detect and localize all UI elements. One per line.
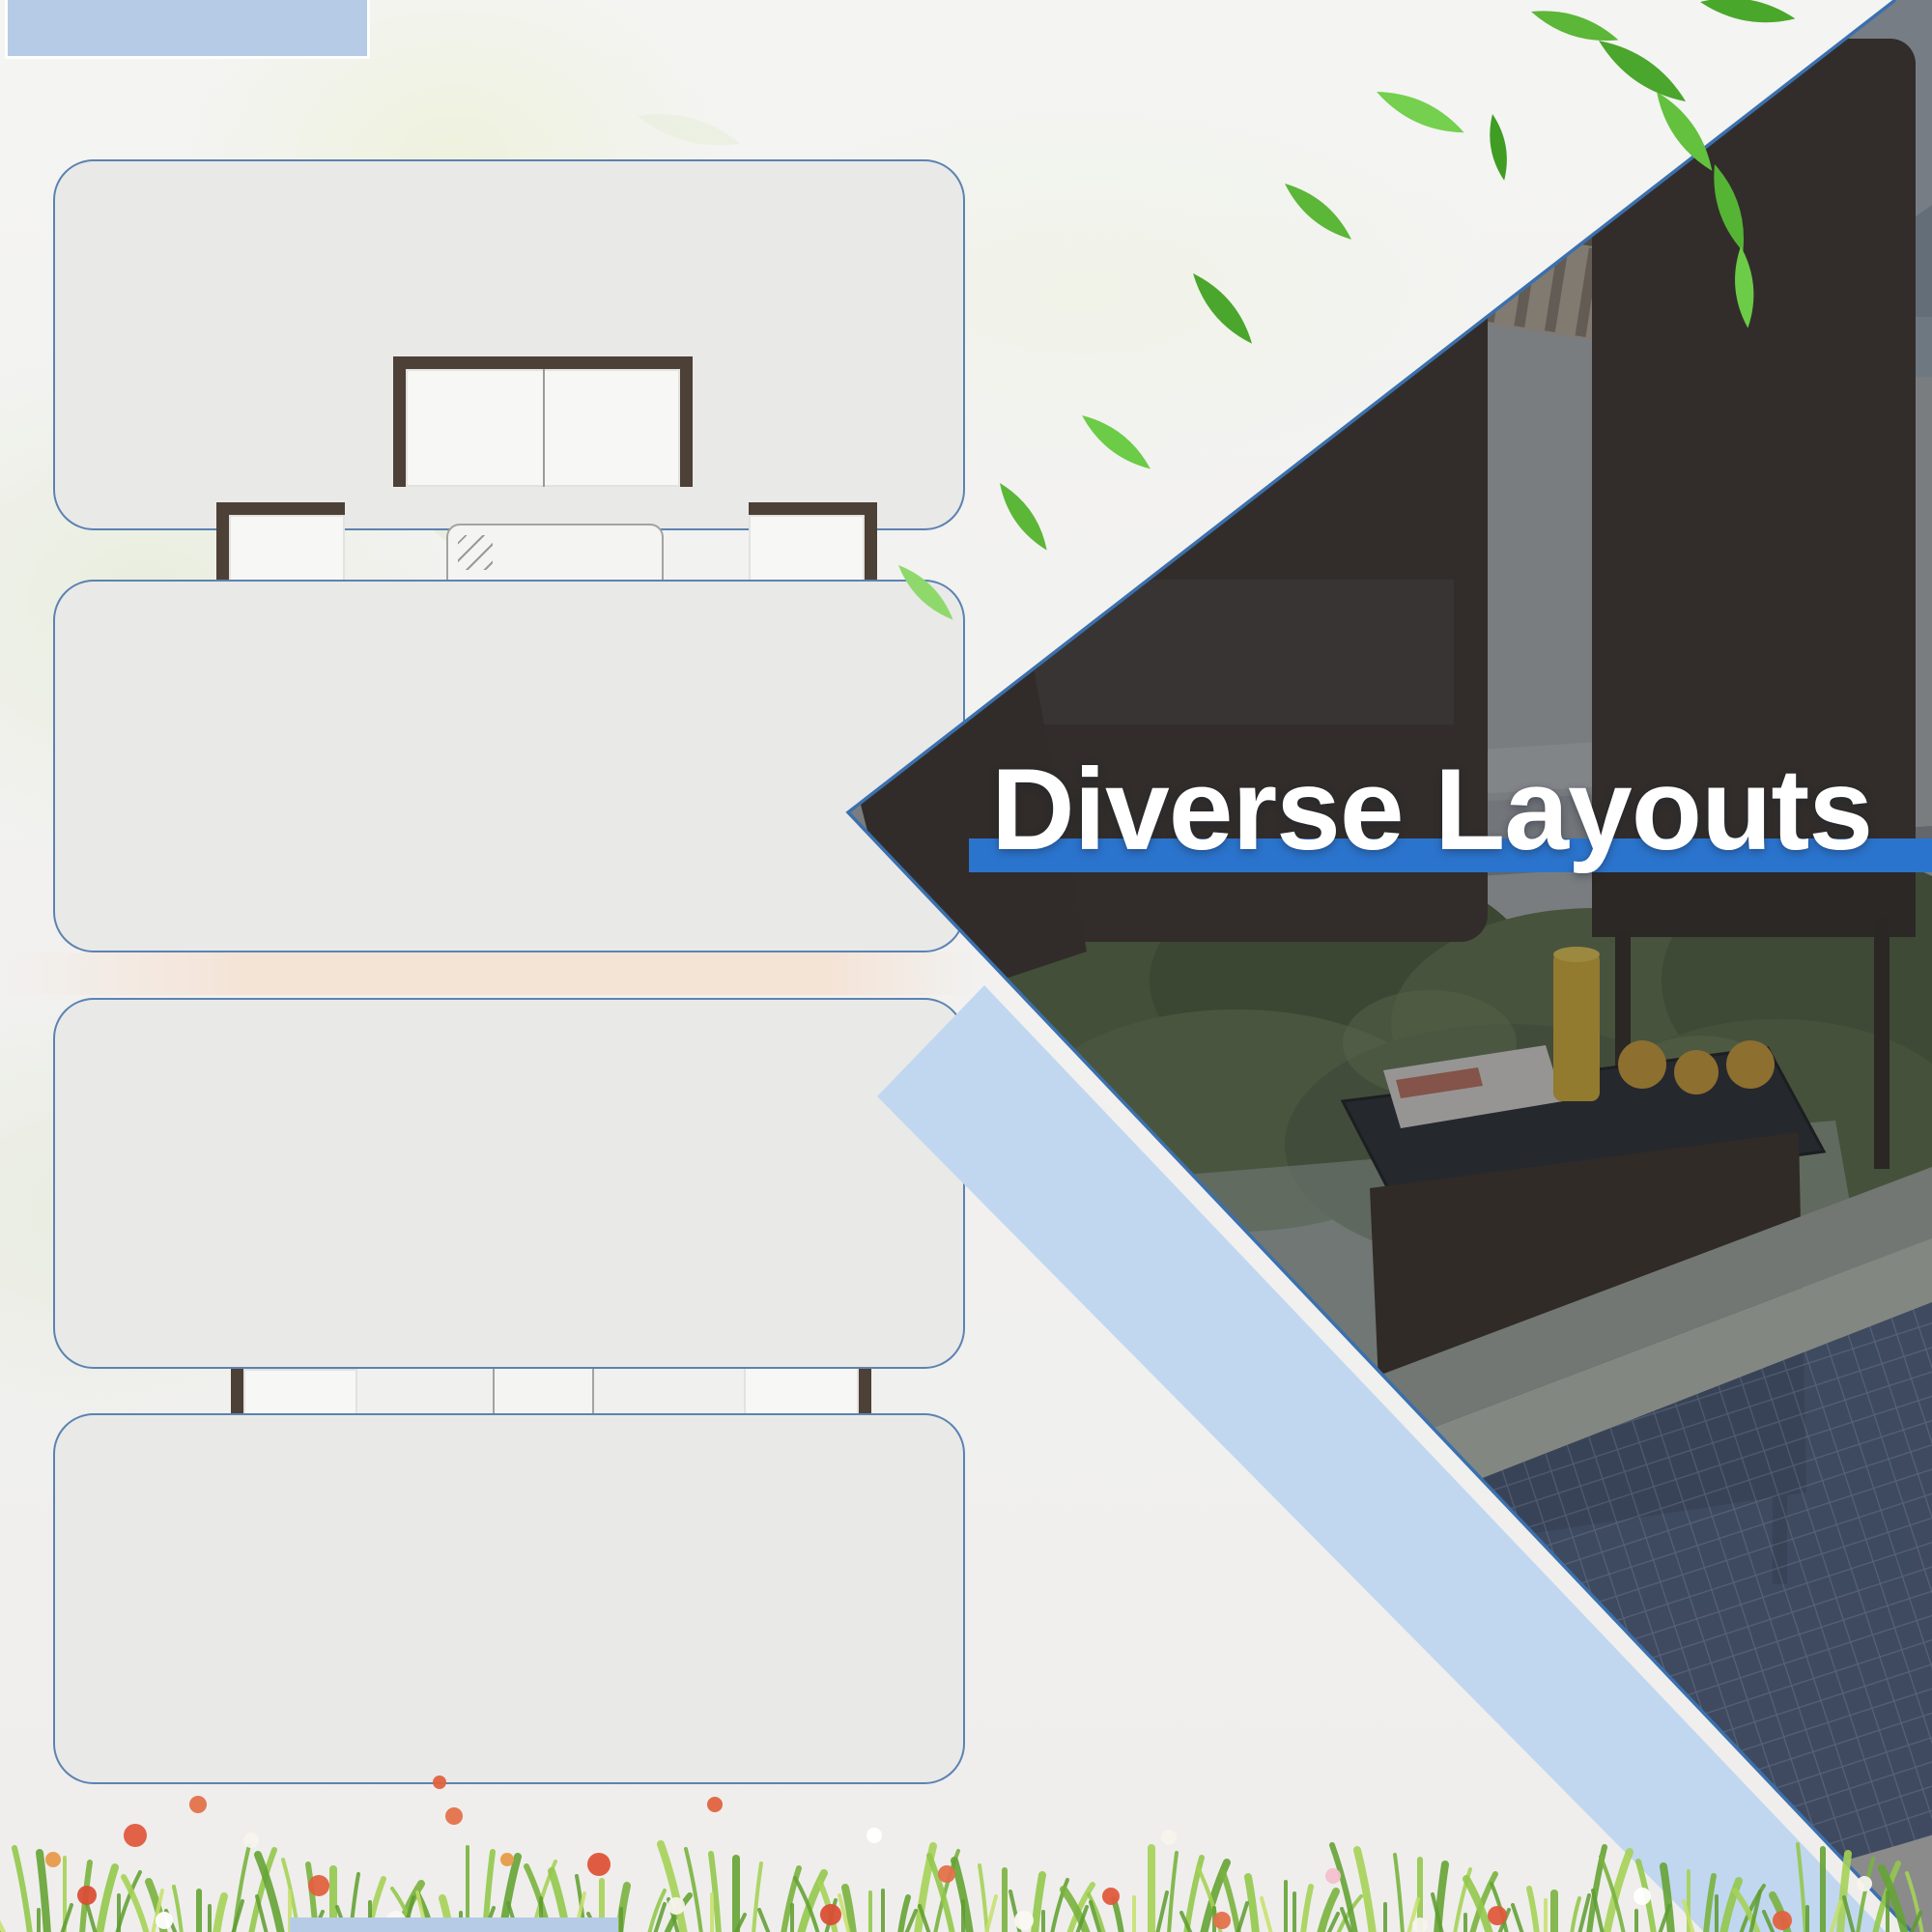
flower-dot — [1014, 1911, 1034, 1930]
grass-blade — [1395, 1855, 1403, 1932]
grass-blade — [900, 1897, 908, 1932]
patio-photo — [821, 0, 1932, 1932]
grass-blade — [1114, 1899, 1122, 1932]
grass-blade — [1157, 1892, 1167, 1932]
grass-blade — [1169, 1853, 1177, 1932]
flower-dot — [1773, 1911, 1792, 1930]
grass-blade — [0, 1915, 5, 1932]
bamboo-leaf-icon — [1372, 82, 1468, 142]
flower-dot — [1488, 1906, 1507, 1925]
flower-dot — [445, 1807, 463, 1825]
page-title: Diverse Layouts — [991, 752, 1872, 867]
grass-blade — [1572, 1898, 1579, 1932]
flower-dot — [124, 1824, 147, 1847]
flower-dot — [1634, 1888, 1651, 1905]
flower-dot — [156, 1912, 173, 1929]
bottom-accent-bar — [290, 1918, 618, 1932]
grass-blade — [980, 1865, 987, 1932]
grass-blade — [686, 1849, 701, 1932]
flower-dot — [820, 1904, 841, 1925]
poster: Diverse Layouts — [0, 0, 1932, 1932]
grass-blade — [1513, 1905, 1522, 1932]
grass-blade — [1237, 1903, 1247, 1932]
flower-dot — [668, 1897, 685, 1915]
grass-blade — [986, 1896, 996, 1932]
flower-dot — [1857, 1876, 1872, 1891]
grass-blade — [1303, 1887, 1311, 1932]
flower-dot — [1161, 1830, 1177, 1845]
grass-blade — [257, 1896, 267, 1932]
flower-dot — [707, 1797, 723, 1812]
flower-dot — [189, 1796, 207, 1813]
grass-blade — [1357, 1850, 1373, 1932]
grass-blade — [759, 1910, 769, 1932]
flower-dot — [500, 1853, 514, 1866]
grass-blade — [174, 1887, 182, 1932]
flower-dot — [77, 1886, 97, 1905]
grass-blade — [906, 1911, 916, 1932]
flower-dot — [433, 1776, 446, 1789]
grass-blade — [1262, 1898, 1271, 1932]
bamboo-leaf-icon — [1076, 408, 1156, 476]
bamboo-leaf-icon — [1485, 113, 1511, 183]
scene-graphics — [0, 0, 1932, 1932]
flower-dot — [587, 1853, 611, 1876]
flower-dot — [45, 1852, 61, 1867]
flower-dot — [308, 1875, 329, 1896]
bamboo-leaf-icon — [1698, 0, 1797, 29]
grass-blade — [40, 1853, 47, 1932]
grass-blade — [753, 1863, 761, 1932]
flower-dot — [1412, 1918, 1428, 1932]
flower-dot — [1325, 1868, 1341, 1884]
bamboo-leaf-icon — [1185, 267, 1260, 350]
grass-blade — [1248, 1877, 1256, 1932]
photo-dark-overlay — [821, 0, 1932, 1932]
flower-dot — [243, 1833, 259, 1848]
grass-blade — [1529, 1889, 1537, 1932]
grass-blade — [216, 1896, 224, 1932]
bamboo-leaf-icon — [893, 559, 959, 626]
grass-blade — [14, 1848, 30, 1932]
grass-blade — [1035, 1875, 1042, 1932]
flower-dot — [1102, 1888, 1120, 1905]
top-left-accent-bar — [8, 0, 367, 56]
flower-dot — [867, 1828, 882, 1843]
bamboo-leaf-icon — [1279, 176, 1358, 246]
bamboo-leaf-icon — [1528, 2, 1622, 49]
flower-dot — [1213, 1912, 1231, 1929]
grass-blade — [1606, 1852, 1630, 1932]
flower-dot — [938, 1865, 955, 1883]
bamboo-leaf-icon — [1592, 31, 1692, 111]
grass-blade — [99, 1867, 115, 1932]
bamboo-leaf-icon — [992, 478, 1054, 555]
